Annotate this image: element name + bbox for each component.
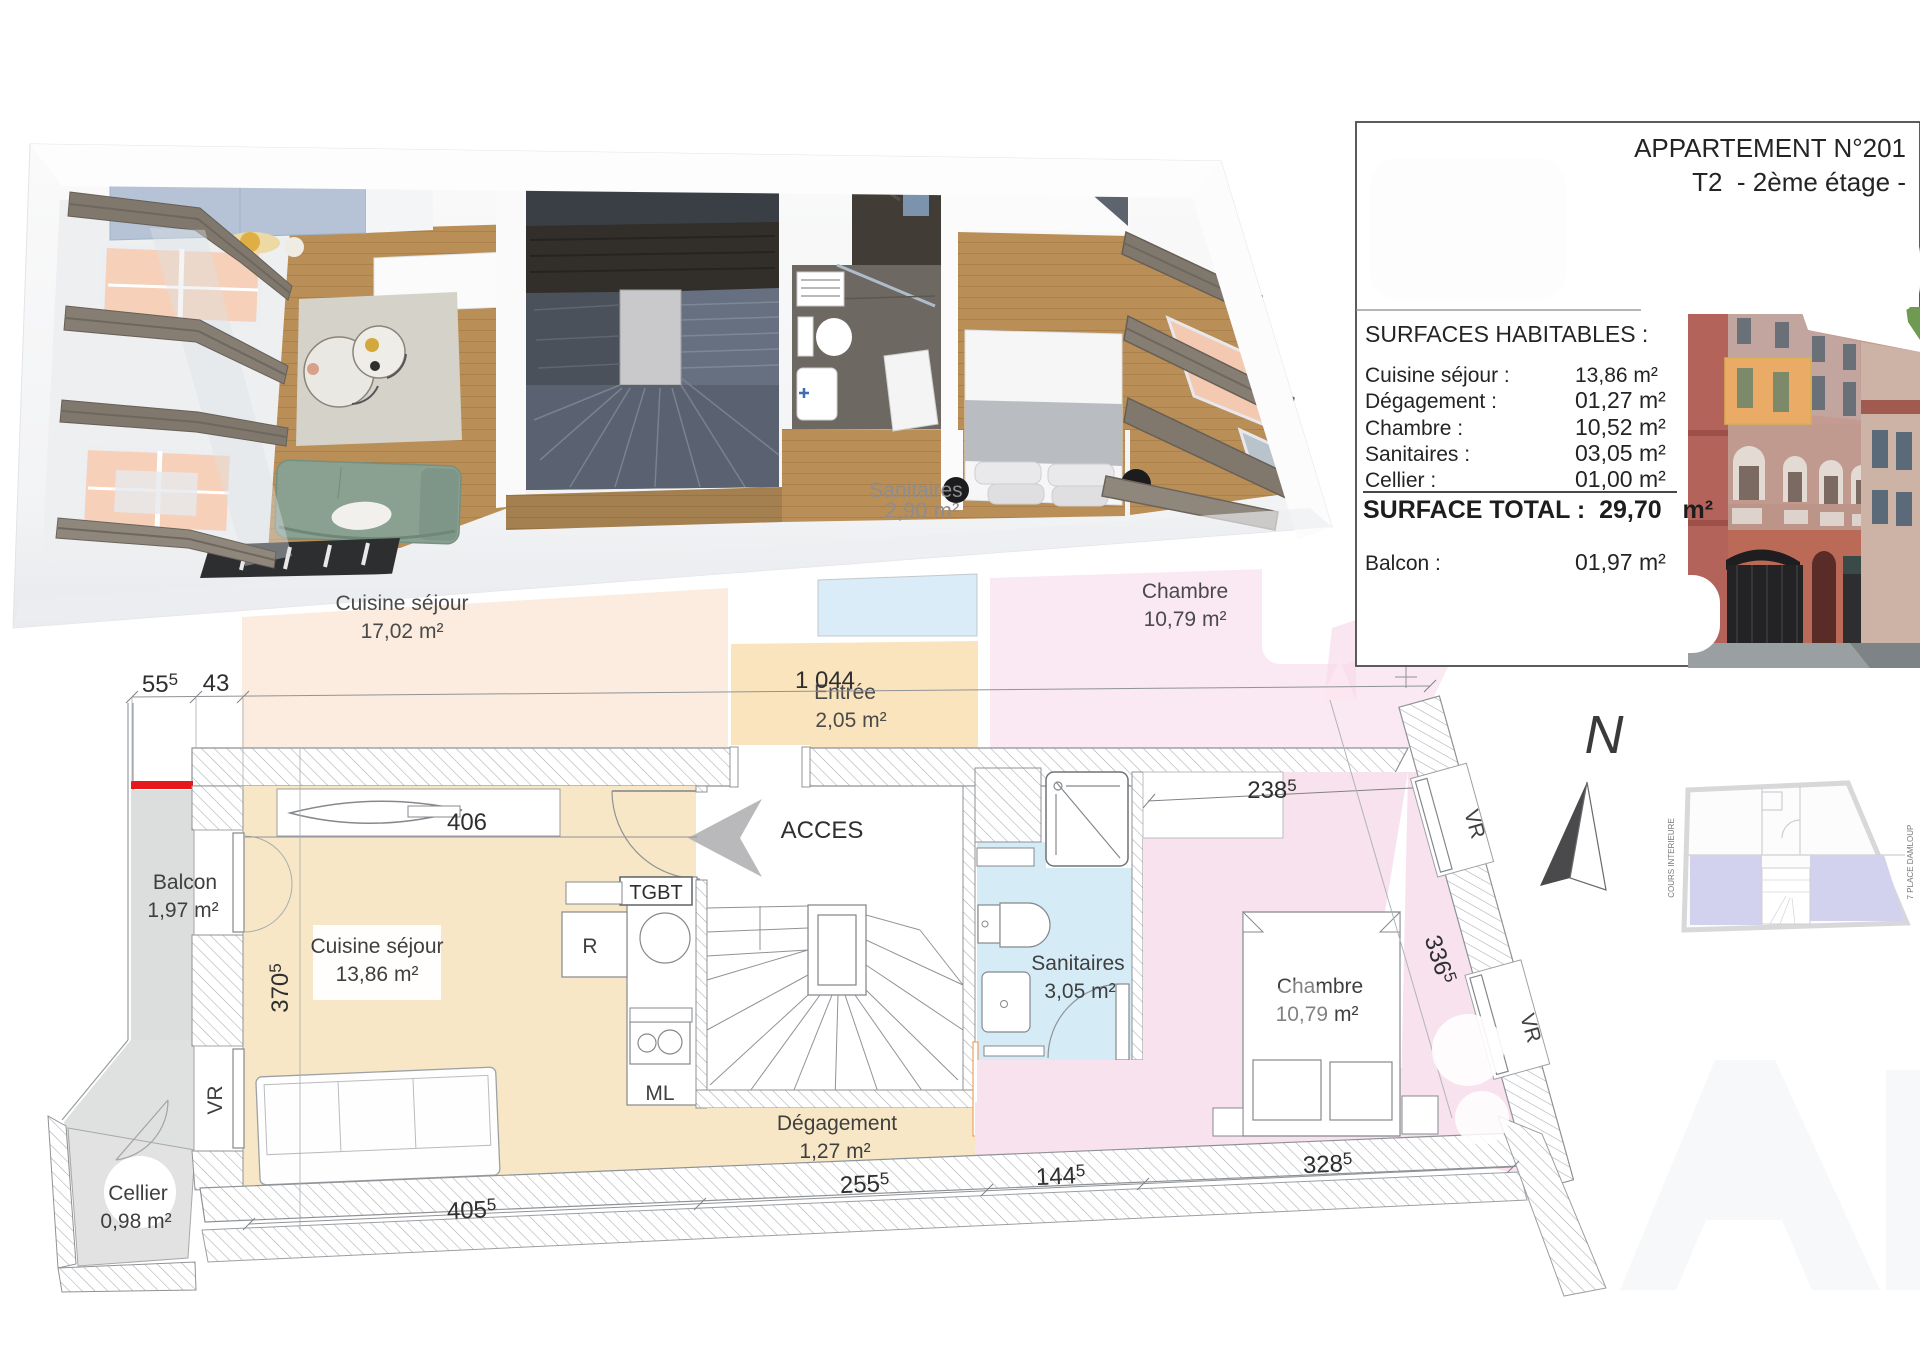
svg-text:SURFACES HABITABLES :: SURFACES HABITABLES : bbox=[1365, 321, 1648, 347]
svg-text:Cellier: Cellier bbox=[108, 1182, 168, 1205]
svg-text:Cuisine séjour :: Cuisine séjour : bbox=[1365, 364, 1510, 387]
svg-text:10,52 m²: 10,52 m² bbox=[1575, 414, 1666, 440]
svg-text:R: R bbox=[582, 935, 597, 958]
svg-text:Dégagement :: Dégagement : bbox=[1365, 390, 1497, 413]
svg-text:406: 406 bbox=[447, 809, 487, 836]
svg-text:APPARTEMENT N°201: APPARTEMENT N°201 bbox=[1634, 133, 1906, 163]
svg-text:Chambre :: Chambre : bbox=[1365, 417, 1463, 440]
svg-text:ACCES: ACCES bbox=[781, 817, 864, 844]
svg-text:43: 43 bbox=[203, 670, 230, 697]
svg-text:01,27 m²: 01,27 m² bbox=[1575, 387, 1666, 413]
svg-text:N: N bbox=[1585, 705, 1625, 765]
svg-text:1,27 m²: 1,27 m² bbox=[799, 1140, 870, 1163]
svg-text:2,90 m²: 2,90 m² bbox=[885, 498, 960, 523]
svg-text:1 044: 1 044 bbox=[795, 667, 855, 694]
svg-text:Balcon :: Balcon : bbox=[1365, 552, 1441, 575]
svg-text:Dégagement: Dégagement bbox=[777, 1112, 897, 1135]
svg-text:3,05 m²: 3,05 m² bbox=[1044, 980, 1115, 1003]
svg-text:Cuisine séjour: Cuisine séjour bbox=[335, 592, 468, 615]
svg-text:1,97 m²: 1,97 m² bbox=[147, 899, 218, 922]
svg-text:VR: VR bbox=[204, 1085, 227, 1114]
svg-text:Sanitaires :: Sanitaires : bbox=[1365, 443, 1470, 466]
svg-text:COURS INTERIEURE: COURS INTERIEURE bbox=[1667, 818, 1676, 898]
svg-text:Cellier :: Cellier : bbox=[1365, 469, 1436, 492]
svg-text:0,98 m²: 0,98 m² bbox=[100, 1210, 171, 1233]
svg-text:7 PLACE DAMLOUP: 7 PLACE DAMLOUP bbox=[1906, 825, 1915, 900]
svg-text:10,79 m²: 10,79 m² bbox=[1144, 608, 1227, 631]
svg-text:Sanitaires: Sanitaires bbox=[1031, 952, 1124, 975]
svg-text:Cuisine séjour: Cuisine séjour bbox=[310, 935, 443, 958]
svg-text:01,97 m²: 01,97 m² bbox=[1575, 549, 1666, 575]
svg-text:TGBT: TGBT bbox=[629, 882, 682, 904]
svg-text:Chambre: Chambre bbox=[1142, 580, 1228, 603]
svg-text:T2 - 2ème étage -: T2 - 2ème étage - bbox=[1692, 167, 1906, 197]
svg-text:SURFACE TOTAL : 29,70 m²: SURFACE TOTAL : 29,70 m² bbox=[1363, 496, 1713, 524]
svg-text:Balcon: Balcon bbox=[153, 871, 217, 894]
svg-text:13,86 m²: 13,86 m² bbox=[336, 963, 419, 986]
svg-text:13,86 m²: 13,86 m² bbox=[1575, 364, 1658, 387]
svg-text:2,05 m²: 2,05 m² bbox=[815, 709, 886, 732]
svg-text:ML: ML bbox=[645, 1082, 674, 1105]
svg-text:03,05 m²: 03,05 m² bbox=[1575, 440, 1666, 466]
svg-text:01,00 m²: 01,00 m² bbox=[1575, 466, 1666, 492]
svg-text:17,02 m²: 17,02 m² bbox=[361, 620, 444, 643]
